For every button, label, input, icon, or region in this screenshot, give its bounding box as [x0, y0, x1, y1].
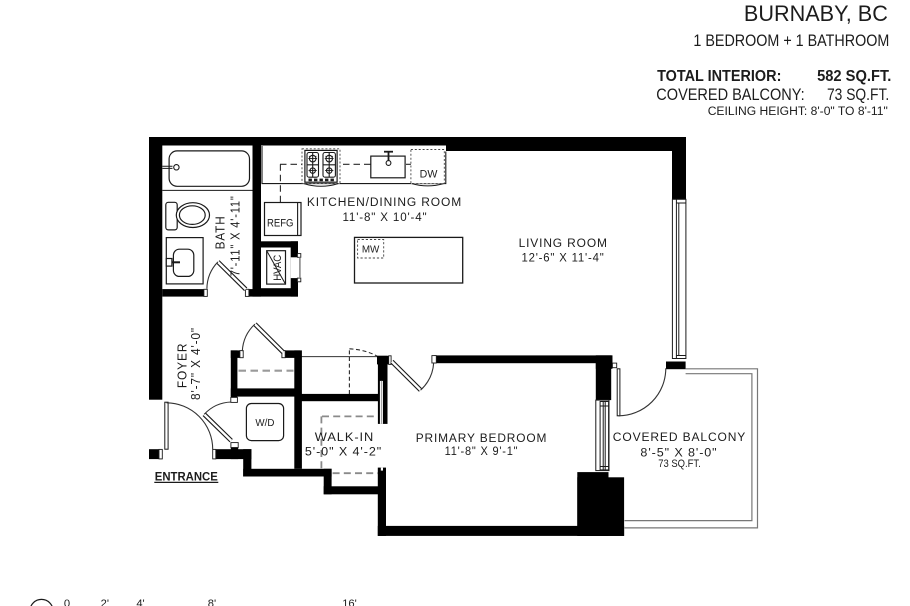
svg-text:11'-8" X 10'-4": 11'-8" X 10'-4" — [343, 210, 428, 224]
svg-text:8'-7" X 4'-0": 8'-7" X 4'-0" — [188, 327, 203, 400]
svg-text:CEILING HEIGHT: 8'-0" TO 8'-11: CEILING HEIGHT: 8'-0" TO 8'-11" — [708, 104, 888, 118]
svg-text:5'-0" X 4'-2": 5'-0" X 4'-2" — [305, 444, 382, 458]
svg-text:COVERED BALCONY: COVERED BALCONY — [613, 430, 746, 444]
svg-text:8': 8' — [208, 598, 216, 606]
svg-text:73 SQ.FT.: 73 SQ.FT. — [658, 458, 701, 470]
svg-text:PRIMARY BEDROOM: PRIMARY BEDROOM — [416, 431, 548, 445]
svg-text:DW: DW — [420, 169, 438, 181]
svg-text:11'-8" X 9'-1": 11'-8" X 9'-1" — [445, 444, 519, 458]
svg-text:582 SQ.FT.: 582 SQ.FT. — [817, 68, 891, 85]
svg-text:MW: MW — [362, 244, 380, 255]
svg-text:ENTRANCE: ENTRANCE — [155, 469, 218, 483]
svg-text:BURNABY, BC: BURNABY, BC — [744, 1, 888, 26]
svg-text:W/D: W/D — [255, 418, 274, 429]
svg-text:1 BEDROOM + 1 BATHROOM: 1 BEDROOM + 1 BATHROOM — [693, 32, 889, 50]
svg-text:12'-6" X 11'-4": 12'-6" X 11'-4" — [521, 250, 604, 264]
svg-text:0: 0 — [64, 598, 70, 606]
svg-text:BATH: BATH — [212, 215, 227, 249]
svg-text:7'-11" X 4'-11": 7'-11" X 4'-11" — [228, 195, 243, 276]
svg-text:2': 2' — [101, 598, 109, 606]
svg-text:16': 16' — [342, 598, 357, 606]
svg-text:WALK-IN: WALK-IN — [315, 430, 374, 444]
svg-text:LIVING ROOM: LIVING ROOM — [519, 236, 608, 250]
svg-text:COVERED BALCONY:: COVERED BALCONY: — [656, 86, 804, 104]
svg-text:KITCHEN/DINING ROOM: KITCHEN/DINING ROOM — [307, 195, 462, 209]
svg-text:REFG: REFG — [267, 217, 294, 229]
svg-text:73 SQ.FT.: 73 SQ.FT. — [827, 86, 889, 104]
svg-text:4': 4' — [136, 598, 144, 606]
svg-text:TOTAL INTERIOR:: TOTAL INTERIOR: — [657, 68, 781, 85]
svg-text:HVAC: HVAC — [272, 255, 284, 281]
